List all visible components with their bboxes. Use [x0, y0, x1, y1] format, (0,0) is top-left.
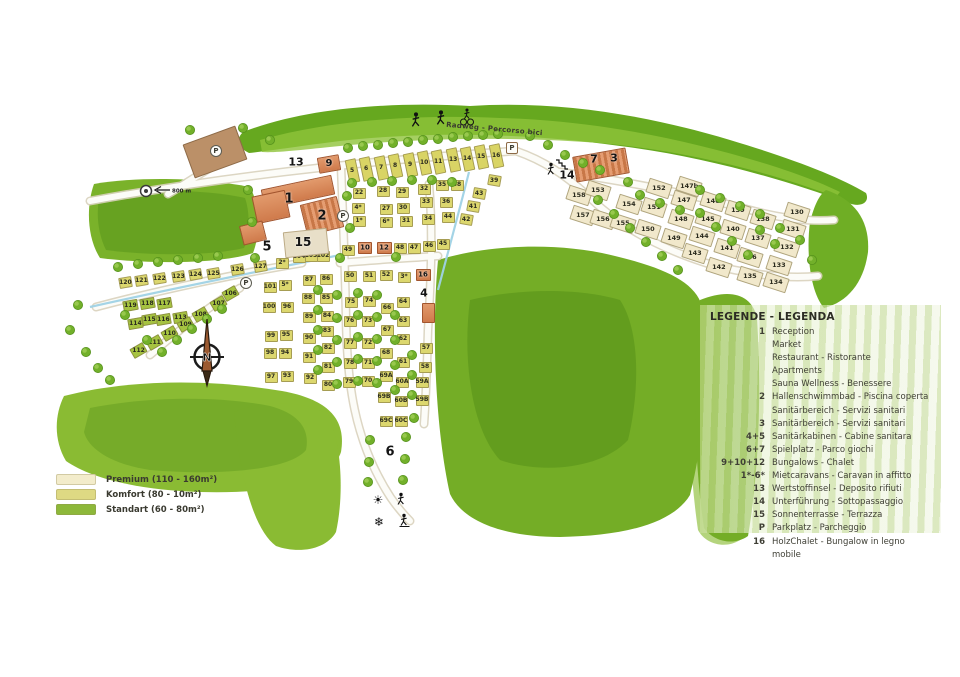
plot: 147 [670, 189, 697, 211]
plot-number: 75 [347, 299, 355, 305]
plot: 123 [171, 269, 186, 282]
plot: 148 [667, 208, 694, 230]
runner-icon [412, 112, 419, 126]
parking-marker: P [240, 277, 252, 289]
plot-number: 94 [281, 350, 289, 356]
plot: 69A [380, 371, 393, 382]
plot-number: 108 [194, 311, 207, 317]
legend-lines: Sanitärkabinen - Cabine sanitara [772, 431, 911, 444]
plot-number: 121 [135, 277, 148, 283]
legend-line: Parkplatz - Parcheggio [772, 522, 867, 535]
plot-number: 59A [416, 379, 429, 385]
plot-number: 101 [264, 284, 277, 290]
area-label: 16 [418, 272, 428, 279]
plot-number: 61 [399, 359, 407, 365]
plot-number: 42 [462, 216, 470, 222]
building [183, 126, 248, 179]
area-label: 13 [288, 157, 303, 168]
plot: 151 [640, 196, 667, 218]
plot: 112 [129, 341, 147, 358]
plot: 59B [416, 395, 429, 406]
plot-number: 111 [148, 339, 161, 345]
plot: 109 [176, 315, 194, 332]
legend-item: 3Sanitärbereich - Servizi sanitari [710, 418, 933, 431]
area-label: 10 [360, 245, 370, 252]
plot: 6 [358, 156, 374, 182]
compass-icon: N [190, 319, 224, 386]
plot-number: 9 [408, 162, 412, 168]
plot: 31 [400, 216, 413, 227]
building [317, 154, 341, 174]
plot: 141 [713, 237, 740, 259]
plot: 143 [681, 242, 708, 264]
plot: 73 [362, 316, 375, 327]
plot-number: 79 [345, 379, 353, 385]
plot-number: 151 [647, 204, 661, 211]
plot: 146 [699, 190, 726, 212]
plot-number: 45 [439, 241, 447, 247]
plot-number: 44 [444, 214, 452, 220]
plot: 9 [402, 152, 418, 178]
legend-line: Reception [772, 326, 891, 339]
plot-number: 60C [395, 418, 408, 424]
plot: 60C [395, 416, 408, 427]
plot: 71 [362, 358, 375, 369]
plot: 136 [736, 246, 763, 268]
plot-number: 69A [380, 373, 393, 379]
legend-item: 14Unterführung - Sottopassaggio [710, 496, 933, 509]
plot: 95 [280, 330, 293, 341]
plot: 72 [362, 338, 375, 349]
plot: 2* [276, 258, 289, 269]
plot-number: 114 [129, 320, 142, 326]
plot: 69B [378, 392, 391, 403]
plot-number: 137 [751, 235, 765, 242]
category-label: Standart (60 - 80m²) [106, 505, 204, 515]
legend-line: Sauna Wellness - Benessere [772, 378, 891, 391]
plot: 147b [675, 175, 702, 197]
plot-number: 52 [382, 272, 390, 278]
plot: 121 [134, 273, 149, 286]
building [261, 175, 336, 210]
legend-title: LEGENDE - LEGENDA [710, 311, 933, 323]
plot-number: 35 [438, 182, 446, 188]
plot-number: 142 [712, 264, 726, 271]
plot-number: 5 [350, 168, 354, 174]
plot-number: 125 [207, 270, 220, 276]
plot-number: 155 [616, 220, 630, 227]
legend-item: 1*-6*Mietcaravans - Caravan in affitto [710, 470, 933, 483]
plot-number: 34 [424, 216, 432, 222]
plot: 96 [281, 302, 294, 313]
legend-item: 16HolzChalet - Bungalow in legno mobile [710, 536, 933, 562]
area-label: 12 [379, 245, 389, 252]
plot-number: 141 [720, 245, 734, 252]
plot-number: 57 [422, 345, 430, 351]
plot: 51 [363, 271, 376, 282]
plot: 39 [487, 173, 502, 186]
plot: 90 [303, 333, 316, 344]
plot-number: 80 [324, 382, 332, 388]
legend-item: 2Hallenschwimmbad - Piscina copertaSanit… [710, 391, 933, 417]
plot-number: 11 [434, 159, 442, 165]
plot-number: 91 [305, 354, 313, 360]
legend-item: 13Wertstoffinsel - Deposito rifiuti [710, 483, 933, 496]
plot-number: 156 [596, 216, 610, 223]
plot: 48 [394, 243, 407, 254]
legend-panel: LEGENDE - LEGENDA 1ReceptionMarketRestau… [700, 305, 941, 533]
plot: 155 [609, 212, 636, 234]
plot: 89 [303, 312, 316, 323]
plot-number: 4* [354, 205, 361, 211]
plot: 106 [221, 284, 239, 301]
plot-number: 120 [119, 279, 132, 285]
plot-number: 96 [283, 304, 291, 310]
plot: 120 [118, 275, 133, 288]
plot-number: 41 [469, 203, 477, 209]
plot-number: 131 [786, 226, 800, 233]
plot-number: 72 [364, 340, 372, 346]
plot: 98 [264, 348, 277, 359]
plot-number: 64 [399, 299, 407, 305]
plot-number: 122 [153, 275, 166, 281]
plot-number: 99 [267, 333, 275, 339]
legend-key: 9+10+12 [710, 457, 765, 470]
plot-number: 8 [393, 163, 397, 169]
plot: 1* [353, 216, 366, 227]
plot-number: 135 [743, 273, 757, 280]
plot: 70 [362, 376, 375, 387]
svg-text:800 m: 800 m [172, 189, 191, 195]
plot: 87 [303, 275, 316, 286]
legend-lines: Sanitärbereich - Servizi sanitari [772, 418, 905, 431]
distance-sign: 800 m [141, 186, 192, 197]
plot: 104 [293, 252, 306, 263]
plot-number: 47 [410, 245, 418, 251]
building [251, 190, 290, 224]
plot-number: 71 [364, 360, 372, 366]
legend-line: Sonnenterrasse - Terrazza [772, 509, 882, 522]
plot: 49 [342, 245, 355, 256]
plot-number: 140 [726, 226, 740, 233]
runner-icon [437, 110, 444, 124]
plot: 27 [380, 204, 393, 215]
plot-number: 143 [688, 250, 702, 257]
plot: 66 [381, 303, 394, 314]
plot: 5* [279, 280, 292, 291]
plot: 60B [395, 396, 408, 407]
legend-item: PParkplatz - Parcheggio [710, 522, 933, 535]
plot-number: 93 [283, 373, 291, 379]
legend-line: Bungalows - Chalet [772, 457, 854, 470]
plot-number: 84 [323, 313, 331, 319]
plot-number: 6 [364, 166, 368, 172]
skier-icon [400, 514, 410, 527]
plot-number: 83 [323, 328, 331, 334]
category-swatch [56, 489, 96, 500]
legend-item: 9+10+12Bungalows - Chalet [710, 457, 933, 470]
legend-key: 14 [710, 496, 765, 509]
campsite-map: 56789101113141516224*1*28276*29303132333… [0, 0, 960, 677]
plot-number: 31 [402, 218, 410, 224]
plot-number: 1* [355, 218, 362, 224]
plot-number: 13 [449, 157, 457, 163]
plot-number: 88 [304, 295, 312, 301]
plot: 132 [773, 236, 800, 258]
category-legend: Premium (110 - 160m²)Komfort (80 - 10m²)… [56, 472, 217, 517]
plot-number: 10 [420, 160, 428, 166]
plot: 113 [172, 310, 189, 323]
sun-icon: ☀ [373, 493, 384, 507]
plot-number: 58 [421, 364, 429, 370]
plot: 68 [380, 348, 393, 359]
legend-lines: HolzChalet - Bungalow in legno mobile [772, 536, 933, 562]
plot: 4* [352, 203, 365, 214]
plot: 79 [343, 377, 356, 388]
plot: 108 [191, 305, 209, 322]
plot: 107 [209, 294, 227, 311]
plot-number: 77 [346, 340, 354, 346]
plot-number: 157 [576, 212, 590, 219]
plot-number: 107 [212, 300, 225, 306]
plot-number: 136 [743, 254, 757, 261]
legend-line: Mietcaravans - Caravan in affitto [772, 470, 911, 483]
plot: 127 [253, 259, 268, 272]
legend-key: 13 [710, 483, 765, 496]
plot-number: 68 [382, 350, 390, 356]
building [422, 303, 435, 323]
legend-line: Hallenschwimmbad - Piscina coperta [772, 391, 928, 404]
plot: 5 [344, 158, 360, 184]
plot-number: 146 [706, 198, 720, 205]
plot: 152 [645, 177, 672, 199]
plot: 43 [472, 186, 487, 199]
parking-marker: P [506, 142, 518, 154]
legend-lines: Unterführung - Sottopassaggio [772, 496, 903, 509]
forest [467, 291, 636, 468]
plot-number: 133 [772, 262, 786, 269]
plot-number: 138 [756, 216, 770, 223]
plot: 118 [139, 296, 156, 309]
legend-key: 15 [710, 509, 765, 522]
area-label: 1 [284, 193, 293, 206]
forest [239, 105, 867, 205]
plot: 34 [422, 214, 435, 225]
plot-number: 100 [263, 304, 276, 310]
plot: 44 [442, 212, 455, 223]
bike-path-label: Radweg - Percorso bici [446, 121, 543, 137]
plot: 138 [749, 208, 776, 230]
plot: 60A [396, 377, 409, 388]
plot: 42 [459, 212, 474, 225]
legend-lines: Spielplatz - Parco giochi [772, 444, 873, 457]
plot-number: 106 [224, 290, 237, 296]
legend-lines: Wertstoffinsel - Deposito rifiuti [772, 483, 902, 496]
building [416, 269, 431, 281]
plot: 88 [302, 293, 315, 304]
plot-number: 134 [769, 279, 783, 286]
legend-key: 16 [710, 536, 765, 562]
plot-number: 2* [278, 260, 285, 266]
plot-number: 76 [346, 318, 354, 324]
plot: 52 [380, 270, 393, 281]
area-label: 6 [385, 446, 394, 459]
plot: 38 [451, 180, 464, 191]
plot-number: 103 [305, 253, 318, 259]
plot: 99 [265, 331, 278, 342]
plot-number: 29 [398, 189, 406, 195]
plot-number: 28 [379, 188, 387, 194]
legend-line: Unterführung - Sottopassaggio [772, 496, 903, 509]
plot-number: 127 [254, 263, 267, 269]
legend-lines: ReceptionMarketRestaurant - RistoranteAp… [772, 326, 891, 391]
legend-key: 1 [710, 326, 765, 391]
plot-number: 110 [163, 330, 176, 336]
plot-number: 3* [400, 274, 407, 280]
plot: 32 [418, 184, 431, 195]
plot: 41 [466, 199, 481, 212]
legend-lines: Mietcaravans - Caravan in affitto [772, 470, 911, 483]
plot-number: 78 [346, 360, 354, 366]
plot-number: 69C [380, 418, 393, 424]
legend-items: 1ReceptionMarketRestaurant - RistoranteA… [710, 326, 933, 562]
stream [90, 172, 469, 307]
area-label: 2 [317, 210, 326, 223]
area-label: 15 [295, 236, 312, 248]
plot: 93 [281, 371, 294, 382]
plot: 84 [321, 311, 334, 322]
plot-number: 66 [383, 305, 391, 311]
category-label: Komfort (80 - 10m²) [106, 490, 201, 500]
plot-number: 32 [420, 186, 428, 192]
legend-lines: Sonnenterrasse - Terrazza [772, 509, 882, 522]
plot-number: 124 [189, 271, 202, 277]
plot-number: 27 [382, 206, 390, 212]
plot: 134 [762, 271, 789, 293]
plot: 83 [321, 326, 334, 337]
plot: 103 [305, 251, 318, 262]
plot-number: 112 [132, 347, 145, 353]
plot: 69C [380, 416, 393, 427]
plot-number: 73 [364, 318, 372, 324]
plot-number: 38 [453, 182, 461, 188]
legend-key: 1*-6* [710, 470, 765, 483]
forest [435, 247, 706, 537]
legend-lines: Bungalows - Chalet [772, 457, 854, 470]
plot: 114 [127, 316, 144, 329]
plot: 16 [488, 143, 504, 169]
plot-number: 33 [422, 199, 430, 205]
plot-number: 60B [395, 398, 408, 404]
plot: 50 [344, 271, 357, 282]
legend-key: 3 [710, 418, 765, 431]
plot: 62 [397, 334, 410, 345]
plot-number: 150 [641, 226, 655, 233]
plot: 125 [206, 266, 221, 279]
plot: 10 [416, 150, 432, 176]
plot: 29 [396, 187, 409, 198]
plot: 130 [783, 201, 810, 223]
legend-item: 6+7Spielplatz - Parco giochi [710, 444, 933, 457]
plot-number: 39 [490, 177, 498, 183]
plot-number: 123 [172, 273, 185, 279]
svg-text:N: N [202, 351, 211, 364]
plot-number: 89 [305, 314, 313, 320]
forest [809, 190, 869, 308]
legend-line: Wertstoffinsel - Deposito rifiuti [772, 483, 902, 496]
plot-number: 154 [622, 201, 636, 208]
plot-number: 109 [179, 321, 192, 327]
plot: 119 [122, 298, 139, 311]
forest [89, 179, 258, 262]
plot: 61 [397, 357, 410, 368]
plot: 157 [569, 204, 596, 226]
plot-number: 130 [790, 209, 804, 216]
legend-lines: Hallenschwimmbad - Piscina copertaSanitä… [772, 391, 928, 417]
category-row: Komfort (80 - 10m²) [56, 487, 217, 502]
plot: 78 [344, 358, 357, 369]
plot: 36 [440, 197, 453, 208]
plot: 11 [430, 149, 446, 175]
legend-item: 15Sonnenterrasse - Terrazza [710, 509, 933, 522]
legend-key: 2 [710, 391, 765, 417]
plot-number: 46 [425, 243, 433, 249]
plot-number: 90 [305, 335, 313, 341]
plot: 76 [344, 316, 357, 327]
plot-number: 97 [267, 374, 275, 380]
plot-number: 16 [492, 153, 500, 159]
plot-number: 119 [124, 302, 137, 308]
legend-line: Sanitärbereich - Servizi sanitari [772, 405, 928, 418]
area-label: 4 [420, 288, 428, 299]
plot-number: 63 [399, 318, 407, 324]
plot: 115 [141, 312, 158, 325]
plot-number: 7 [379, 165, 383, 171]
plot-number: 62 [399, 336, 407, 342]
area-label: 3 [610, 153, 618, 164]
plot-number: 87 [305, 277, 313, 283]
plot: 35 [436, 180, 449, 191]
building [377, 242, 392, 254]
plot-number: 67 [383, 327, 391, 333]
plot: 64 [397, 297, 410, 308]
plot-number: 149 [667, 235, 681, 242]
plot-number: 85 [322, 295, 330, 301]
legend-item: 1ReceptionMarketRestaurant - RistoranteA… [710, 326, 933, 391]
plot: 3* [398, 272, 411, 283]
plot: 142 [705, 256, 732, 278]
plot: 102 [317, 251, 330, 262]
plot-number: 95 [282, 332, 290, 338]
forest [84, 399, 307, 472]
plot-number: 144 [695, 233, 709, 240]
legend-lines: Parkplatz - Parcheggio [772, 522, 867, 535]
plot: 110 [160, 324, 178, 341]
north-needle [202, 319, 212, 371]
plot: 150 [634, 218, 661, 240]
plot-number: 74 [365, 298, 373, 304]
legend-line: Market [772, 339, 891, 352]
legend-line: Restaurant - Ristorante [772, 352, 891, 365]
plot: 145 [694, 208, 721, 230]
plot: 117 [156, 296, 173, 309]
plot-number: 147b [680, 183, 698, 190]
category-row: Premium (110 - 160m²) [56, 472, 217, 487]
plot-number: 153 [591, 187, 605, 194]
plot-number: 148 [674, 216, 688, 223]
plot-number: 113 [174, 314, 187, 320]
plot: 45 [437, 239, 450, 250]
